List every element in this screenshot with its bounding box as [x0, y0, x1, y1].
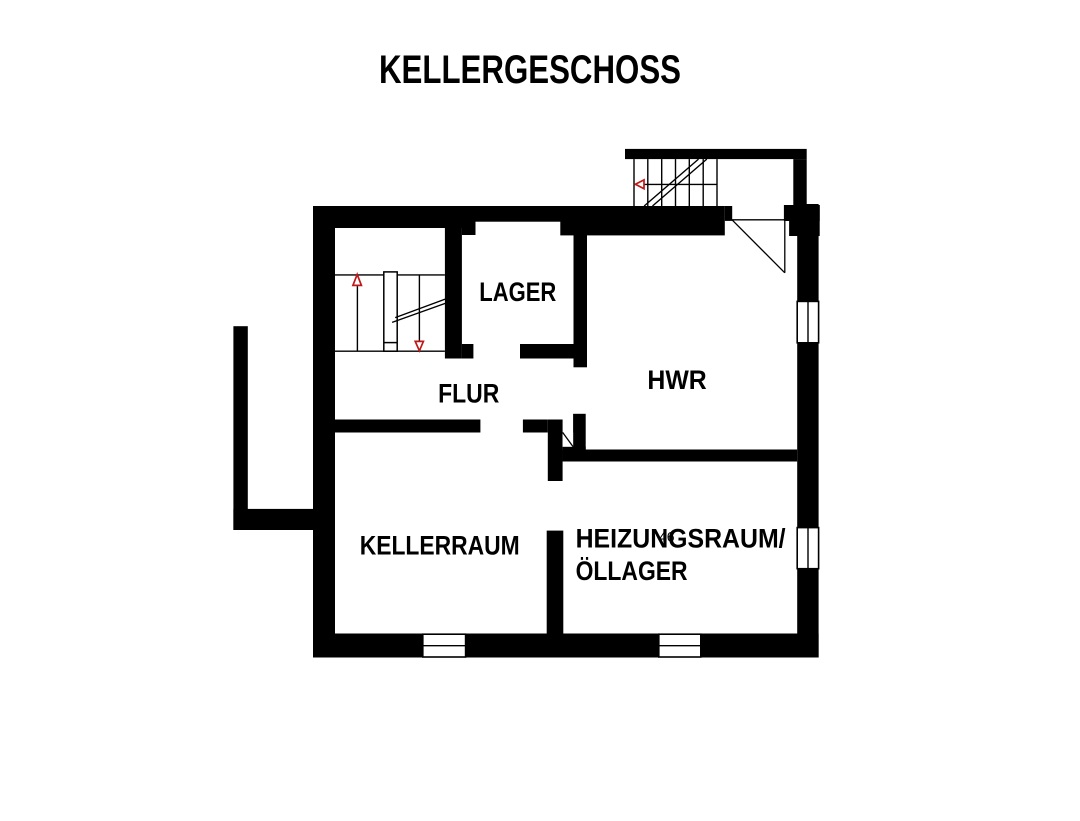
svg-text:ÖLLAGER: ÖLLAGER — [576, 556, 688, 586]
svg-text:KELLERRAUM: KELLERRAUM — [360, 530, 520, 560]
svg-text:KELLERGESCHOSS: KELLERGESCHOSS — [379, 48, 681, 92]
svg-text:HWR: HWR — [647, 365, 706, 395]
svg-text:LAGER: LAGER — [479, 277, 556, 307]
svg-text:FLUR: FLUR — [438, 379, 499, 409]
svg-text:HEIZUNGSRAUM/: HEIZUNGSRAUM/ — [576, 523, 787, 553]
